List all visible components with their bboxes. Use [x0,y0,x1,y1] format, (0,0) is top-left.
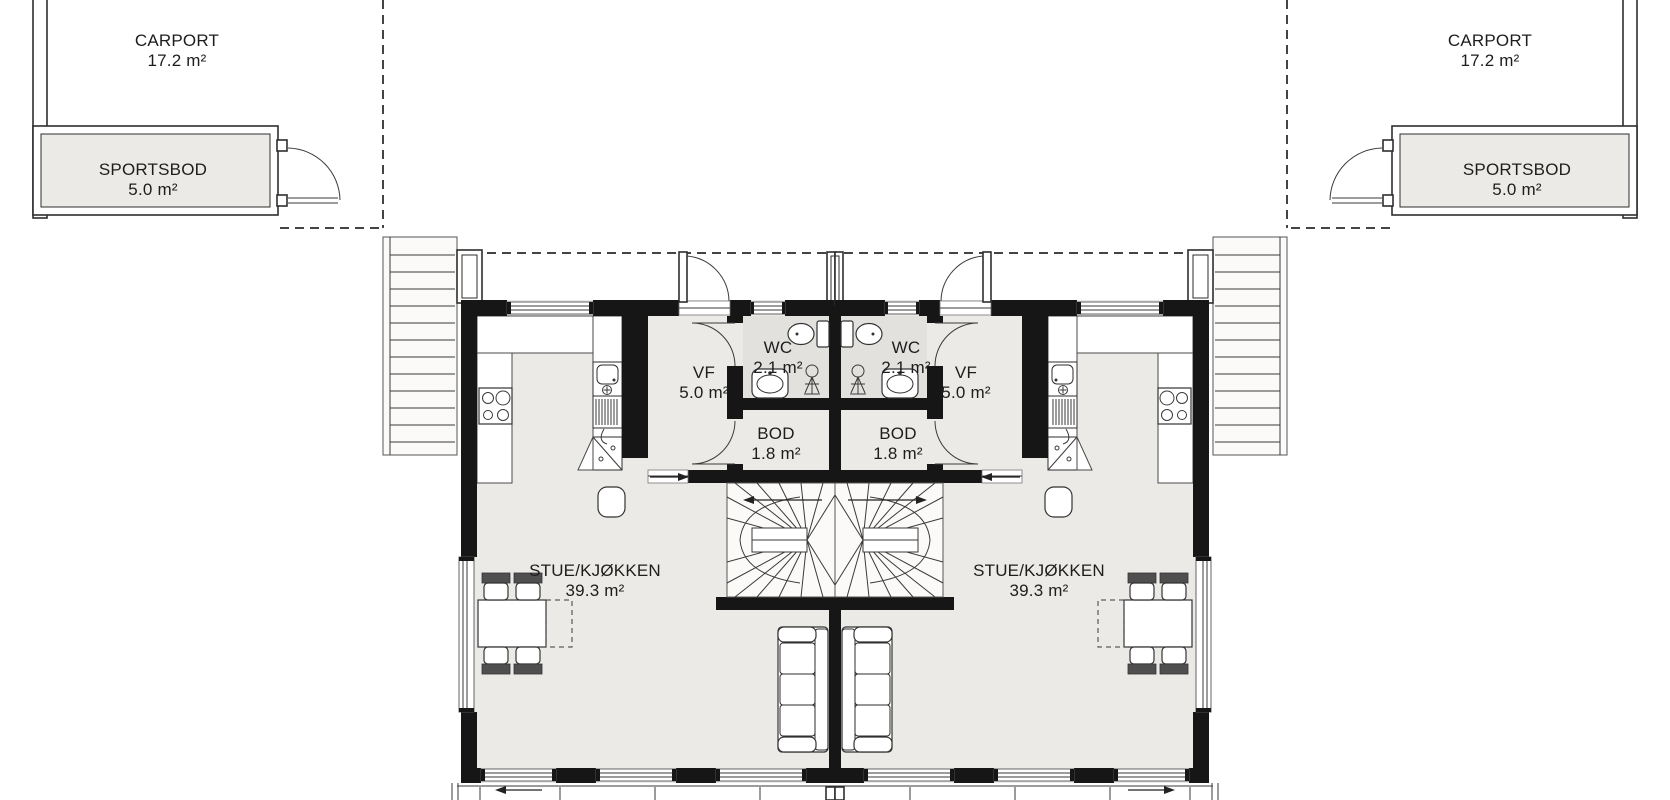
room-label-sportsbod-right: SPORTSBOD5.0 m² [1463,160,1571,200]
stool-fixture [598,487,625,517]
room-label-stue-right: STUE/KJØKKEN39.3 m² [973,561,1105,601]
chair [482,647,510,674]
chair [514,647,542,674]
winding-stair [727,483,835,597]
floor-plan: CARPORT17.2 m² CARPORT17.2 m² SPORTSBOD5… [0,0,1670,800]
sofa [778,627,828,752]
room-label-bod-left: BOD1.8 m² [751,424,800,464]
room-label-stue-left: STUE/KJØKKEN39.3 m² [529,561,661,601]
cooktop-fixture [479,388,512,424]
room-label-carport-right: CARPORT17.2 m² [1448,31,1532,71]
dining-table [478,600,546,647]
room-label-vf-left: VF5.0 m² [679,363,728,403]
external-stair [383,237,457,455]
chair [482,573,510,600]
terrace-edge [452,783,835,800]
entrance-porch [457,250,835,305]
floorplan-drawing [0,0,1670,800]
vf-passage [648,470,689,483]
room-label-wc-right: WC2.1 m² [881,338,930,378]
room-label-wc-left: WC2.1 m² [753,338,802,378]
room-label-carport-left: CARPORT17.2 m² [135,31,219,71]
room-label-bod-right: BOD1.8 m² [873,424,922,464]
room-label-sportsbod-left: SPORTSBOD5.0 m² [99,160,207,200]
room-label-vf-right: VF5.0 m² [941,363,990,403]
